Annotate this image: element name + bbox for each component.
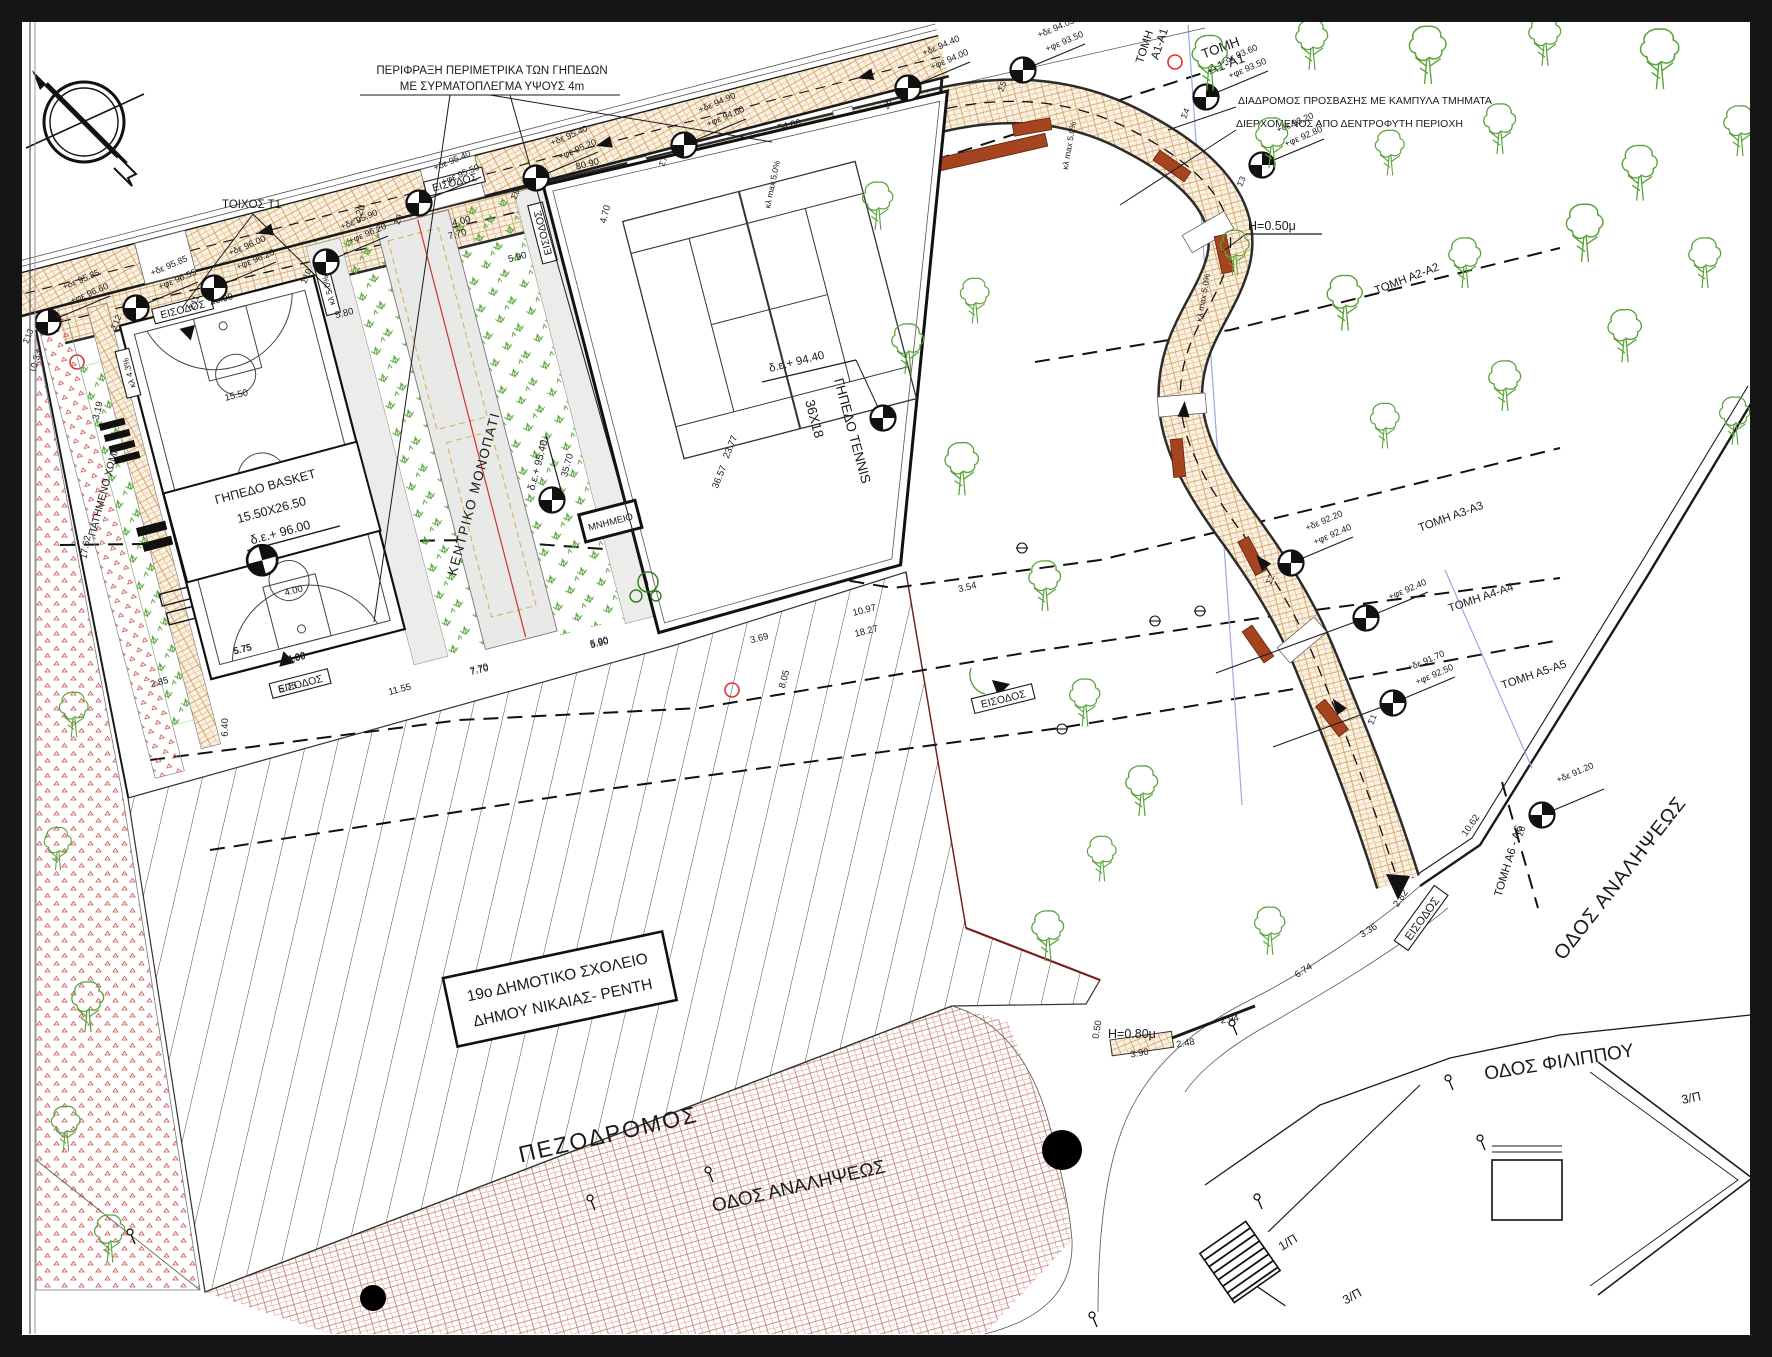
tree-dot — [1042, 1130, 1082, 1170]
access-note: ΔΙΕΡΧΟΜΕΝΟΣ ΑΠΟ ΔΕΝΤΡΟΦΥΤΗ ΠΕΡΙΟΧΗ — [1236, 118, 1463, 130]
wall-t1-label: ΤΟΙΧΟΣ Τ1 — [222, 199, 281, 211]
dim-label: 6.40 — [220, 718, 231, 737]
access-note: ΔΙΑΔΡΟΜΟΣ ΠΡΟΣΒΑΣΗΣ ΜΕ ΚΑΜΠΥΛΑ ΤΜΗΜΑΤΑ — [1238, 95, 1492, 107]
site-plan-sheet: ΜΝΗΜΕΙΟ ΕΙΣΟΔΟΣ ΕΙΣΟΔΟΣ ΕΙΣΟΔΟΣ ΕΙΣΟΔΟΣ … — [0, 0, 1772, 1357]
tree-dot — [360, 1285, 386, 1311]
wall-h080-label: H=0.80μ — [1108, 1027, 1156, 1041]
fence-note: ΜΕ ΣΥΡΜΑΤΟΠΛΕΓΜΑ ΥΨΟΥΣ 4m — [400, 81, 584, 93]
wall-h050-label: H=0.50μ — [1248, 219, 1296, 233]
site-plan-drawing: ΜΝΗΜΕΙΟ ΕΙΣΟΔΟΣ ΕΙΣΟΔΟΣ ΕΙΣΟΔΟΣ ΕΙΣΟΔΟΣ … — [0, 0, 1772, 1357]
fence-note: ΠΕΡΙΦΡΑΞΗ ΠΕΡΙΜΕΤΡΙΚΑ ΤΩΝ ΓΗΠΕΔΩΝ — [376, 65, 607, 77]
